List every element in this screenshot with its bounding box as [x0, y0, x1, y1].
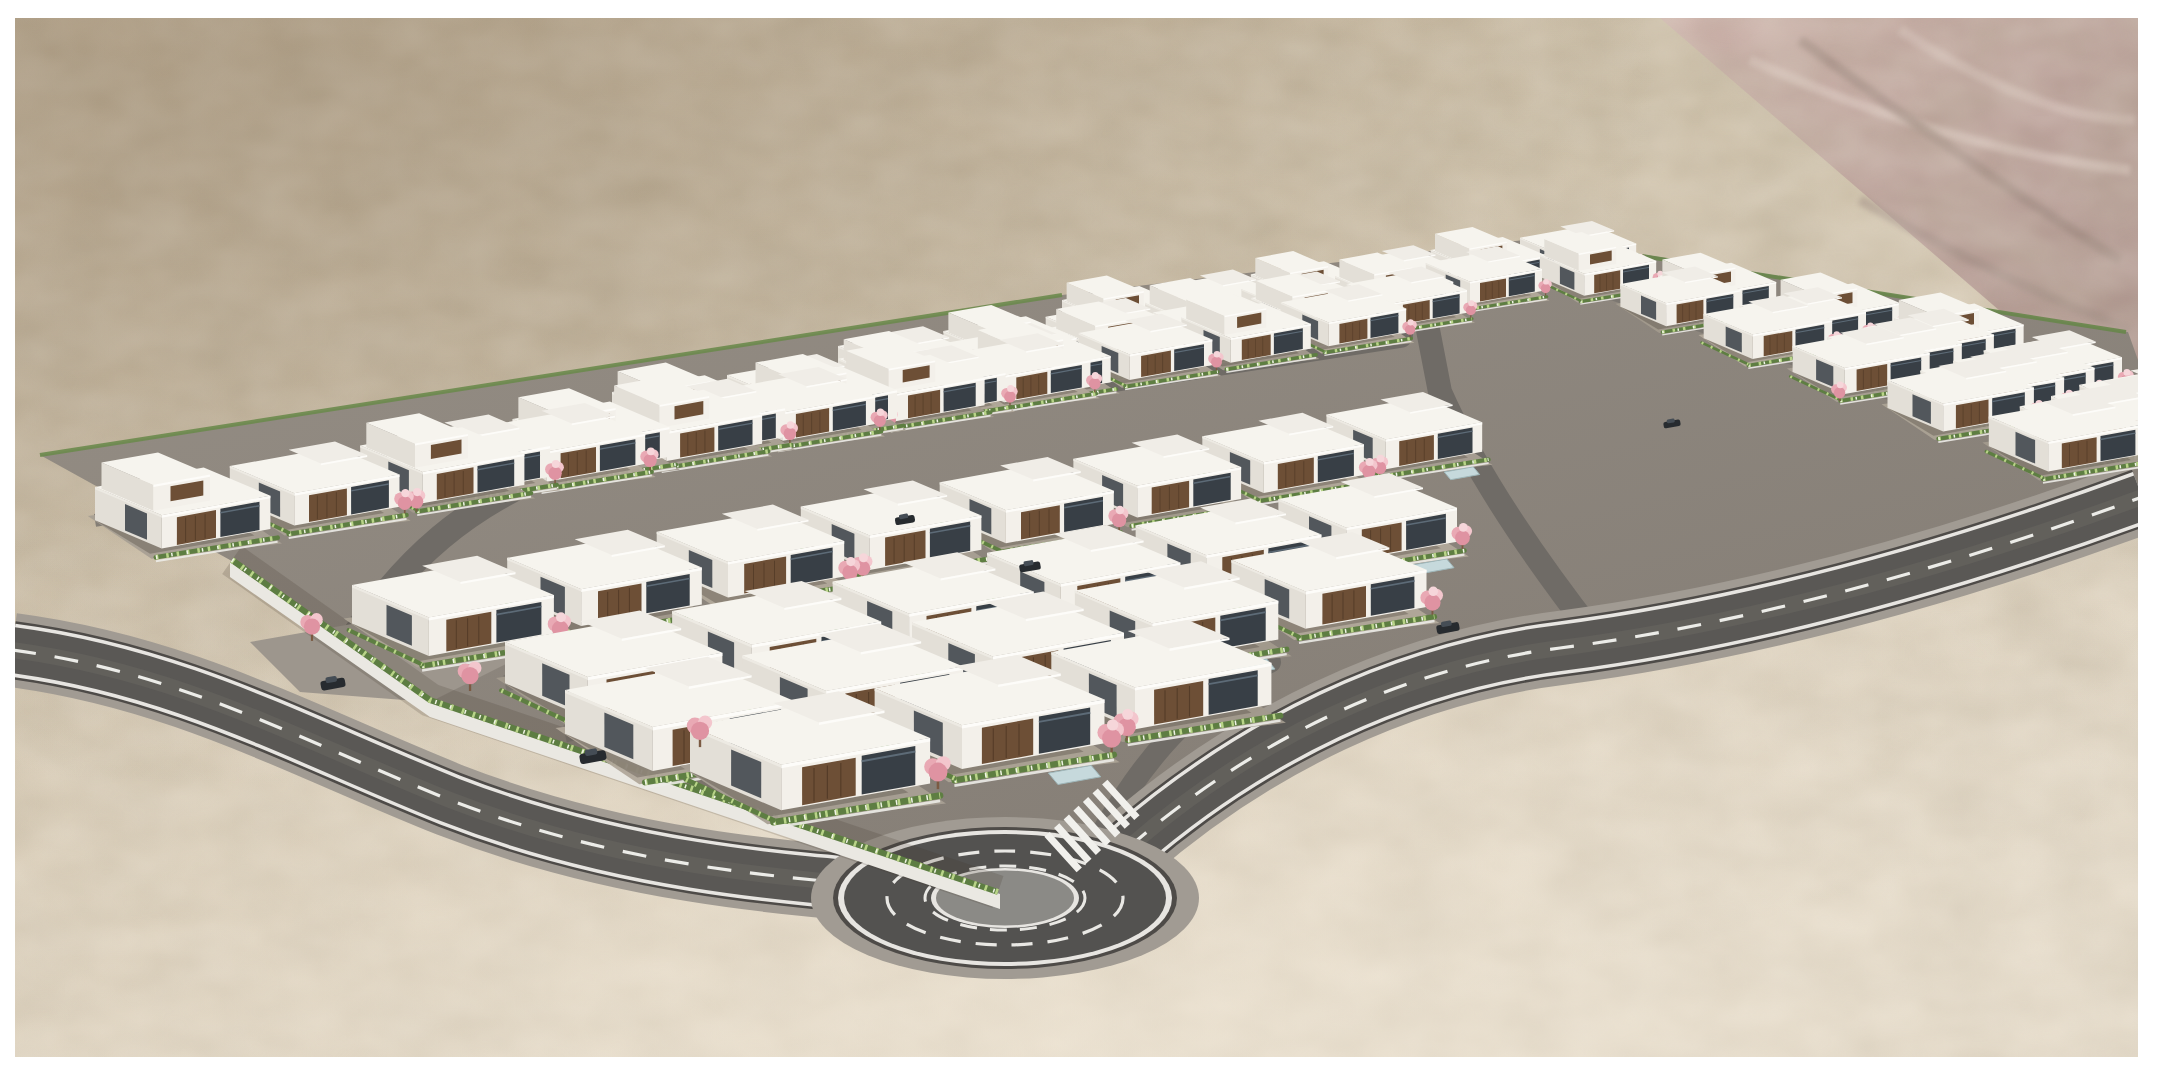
render-canvas — [0, 0, 2160, 1080]
architectural-rendering — [0, 0, 2160, 1080]
